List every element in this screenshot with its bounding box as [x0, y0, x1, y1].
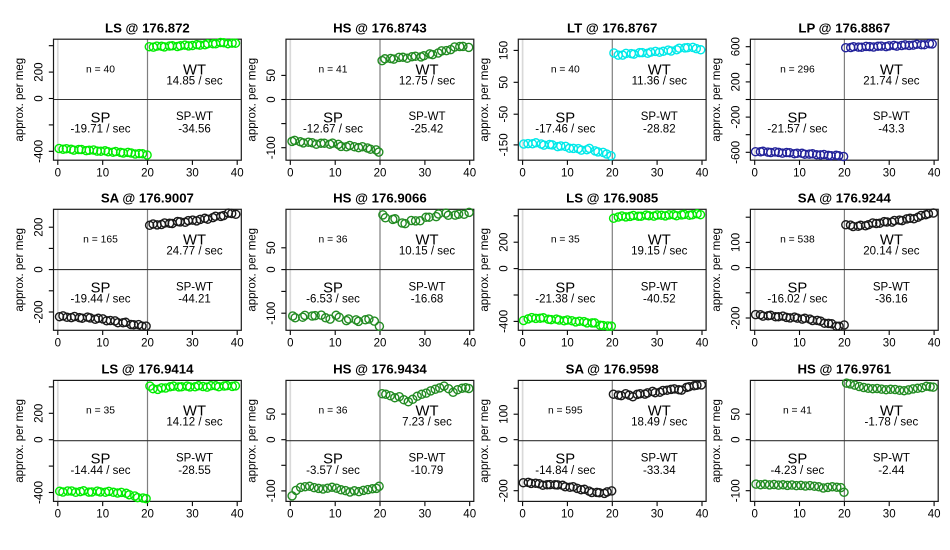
svg-text:40: 40 — [928, 338, 941, 350]
svg-text:n = 595: n = 595 — [548, 406, 583, 417]
svg-text:50: 50 — [266, 241, 278, 254]
svg-text:HS @ 176.9761: HS @ 176.9761 — [798, 362, 892, 377]
svg-text:-19.44 / sec: -19.44 / sec — [70, 294, 130, 306]
svg-text:150: 150 — [498, 41, 510, 60]
svg-text:24.77 / sec: 24.77 / sec — [166, 246, 223, 258]
svg-text:11.36 / sec: 11.36 / sec — [632, 75, 688, 87]
svg-text:0: 0 — [519, 509, 525, 521]
svg-text:0: 0 — [55, 509, 61, 521]
svg-text:10: 10 — [561, 509, 574, 521]
svg-text:-600: -600 — [730, 141, 742, 164]
svg-text:-200: -200 — [498, 479, 510, 502]
svg-text:SP-WT: SP-WT — [873, 281, 910, 293]
svg-text:40: 40 — [928, 509, 941, 521]
svg-text:-16.68: -16.68 — [411, 294, 444, 306]
svg-text:-2.44: -2.44 — [878, 465, 905, 477]
svg-text:SP-WT: SP-WT — [873, 452, 910, 464]
svg-text:40: 40 — [231, 338, 244, 350]
svg-text:approx. per meg: approx. per meg — [247, 58, 259, 142]
svg-text:10: 10 — [793, 167, 806, 179]
svg-text:14.12 / sec: 14.12 / sec — [166, 417, 223, 429]
svg-text:0: 0 — [498, 265, 510, 271]
svg-text:-16.02 / sec: -16.02 / sec — [767, 294, 827, 306]
svg-text:-14.44 / sec: -14.44 / sec — [70, 465, 130, 477]
svg-text:0: 0 — [751, 509, 757, 521]
svg-text:20: 20 — [838, 338, 851, 350]
svg-text:0: 0 — [519, 167, 525, 179]
svg-text:50: 50 — [498, 76, 510, 89]
svg-text:10: 10 — [793, 509, 806, 521]
svg-text:30: 30 — [186, 167, 199, 179]
svg-text:10.15 / sec: 10.15 / sec — [399, 246, 456, 258]
svg-text:30: 30 — [419, 509, 432, 521]
svg-text:-12.67 / sec: -12.67 / sec — [303, 124, 363, 136]
svg-text:20: 20 — [838, 167, 851, 179]
svg-text:-6.53 / sec: -6.53 / sec — [306, 294, 360, 306]
svg-text:18.49 / sec: 18.49 / sec — [631, 417, 688, 429]
svg-text:0: 0 — [266, 96, 278, 102]
svg-text:0: 0 — [751, 167, 757, 179]
svg-text:20.14 / sec: 20.14 / sec — [863, 246, 920, 258]
svg-text:LS @ 176.872: LS @ 176.872 — [105, 21, 190, 36]
svg-text:-150: -150 — [498, 133, 510, 156]
svg-text:approx. per meg: approx. per meg — [247, 399, 259, 483]
svg-text:10: 10 — [329, 338, 342, 350]
svg-text:40: 40 — [231, 167, 244, 179]
svg-text:-36.16: -36.16 — [875, 294, 908, 306]
svg-text:approx. per meg: approx. per meg — [479, 399, 491, 483]
svg-text:30: 30 — [883, 509, 896, 521]
svg-text:20: 20 — [374, 338, 387, 350]
svg-text:-10.79: -10.79 — [411, 465, 444, 477]
svg-text:LT @ 176.8767: LT @ 176.8767 — [567, 21, 657, 36]
svg-text:10: 10 — [96, 338, 109, 350]
svg-text:-40.52: -40.52 — [643, 294, 676, 306]
svg-text:-200: -200 — [730, 106, 742, 129]
svg-text:-400: -400 — [498, 310, 510, 333]
svg-text:-100: -100 — [266, 479, 278, 502]
svg-text:30: 30 — [883, 167, 896, 179]
svg-text:40: 40 — [463, 509, 476, 521]
svg-text:-28.55: -28.55 — [178, 465, 211, 477]
svg-text:SA @ 176.9244: SA @ 176.9244 — [798, 191, 892, 206]
svg-text:20: 20 — [141, 338, 154, 350]
svg-text:-100: -100 — [266, 136, 278, 159]
svg-text:200: 200 — [730, 72, 742, 91]
svg-text:30: 30 — [883, 338, 896, 350]
svg-text:100: 100 — [498, 405, 510, 424]
svg-text:40: 40 — [463, 167, 476, 179]
svg-text:7.23 / sec: 7.23 / sec — [402, 417, 452, 429]
svg-text:40: 40 — [696, 338, 709, 350]
svg-text:200: 200 — [498, 233, 510, 252]
svg-text:20: 20 — [606, 509, 619, 521]
svg-text:approx. per meg: approx. per meg — [14, 228, 26, 312]
svg-text:HS @ 176.9066: HS @ 176.9066 — [333, 191, 427, 206]
svg-text:-14.84 / sec: -14.84 / sec — [535, 465, 595, 477]
svg-text:30: 30 — [651, 338, 664, 350]
svg-text:approx. per meg: approx. per meg — [711, 58, 723, 142]
svg-text:-34.56: -34.56 — [178, 124, 211, 136]
svg-text:-43.3: -43.3 — [878, 124, 904, 136]
svg-text:20: 20 — [141, 167, 154, 179]
svg-text:50: 50 — [730, 408, 742, 421]
svg-text:approx. per meg: approx. per meg — [479, 58, 491, 142]
svg-text:30: 30 — [186, 509, 199, 521]
svg-text:n = 41: n = 41 — [783, 406, 812, 417]
svg-text:21.74 / sec: 21.74 / sec — [863, 75, 920, 87]
svg-text:SP-WT: SP-WT — [873, 111, 910, 123]
svg-text:10: 10 — [96, 167, 109, 179]
svg-text:-1.78 / sec: -1.78 / sec — [865, 417, 919, 429]
svg-text:SP-WT: SP-WT — [176, 111, 213, 123]
svg-text:-50: -50 — [498, 106, 510, 123]
svg-text:n = 538: n = 538 — [780, 234, 815, 245]
svg-text:0: 0 — [266, 436, 278, 442]
svg-text:50: 50 — [266, 408, 278, 421]
svg-text:0: 0 — [34, 436, 46, 442]
svg-text:0: 0 — [34, 95, 46, 101]
svg-text:200: 200 — [34, 63, 46, 82]
svg-text:10: 10 — [329, 167, 342, 179]
svg-text:-19.71 / sec: -19.71 / sec — [70, 124, 130, 136]
svg-text:0: 0 — [730, 436, 742, 442]
svg-text:20: 20 — [374, 509, 387, 521]
svg-text:20: 20 — [141, 509, 154, 521]
svg-text:20: 20 — [374, 167, 387, 179]
svg-text:20: 20 — [606, 338, 619, 350]
svg-text:-200: -200 — [730, 306, 742, 329]
svg-text:0: 0 — [498, 436, 510, 442]
svg-text:approx. per meg: approx. per meg — [14, 58, 26, 142]
svg-text:SP-WT: SP-WT — [641, 281, 678, 293]
svg-text:30: 30 — [186, 338, 199, 350]
svg-text:0: 0 — [55, 167, 61, 179]
svg-text:20: 20 — [606, 167, 619, 179]
svg-text:n = 36: n = 36 — [319, 234, 348, 245]
svg-text:n = 35: n = 35 — [551, 234, 580, 245]
svg-text:-4.23 / sec: -4.23 / sec — [771, 465, 825, 477]
svg-text:SP-WT: SP-WT — [408, 111, 445, 123]
svg-text:LS @ 176.9414: LS @ 176.9414 — [101, 362, 194, 377]
svg-text:SP-WT: SP-WT — [408, 281, 445, 293]
svg-text:14.85 / sec: 14.85 / sec — [166, 75, 223, 87]
svg-text:-100: -100 — [730, 479, 742, 502]
svg-text:n = 35: n = 35 — [86, 406, 115, 417]
svg-text:10: 10 — [561, 338, 574, 350]
svg-text:approx. per meg: approx. per meg — [479, 228, 491, 312]
svg-text:HS @ 176.8743: HS @ 176.8743 — [333, 21, 427, 36]
svg-text:50: 50 — [266, 69, 278, 82]
svg-text:-33.34: -33.34 — [643, 465, 676, 477]
svg-text:40: 40 — [696, 167, 709, 179]
svg-text:20: 20 — [838, 509, 851, 521]
svg-text:LS @ 176.9085: LS @ 176.9085 — [566, 191, 658, 206]
svg-text:12.75 / sec: 12.75 / sec — [399, 75, 456, 87]
svg-text:200: 200 — [34, 404, 46, 423]
svg-text:0: 0 — [266, 266, 278, 272]
svg-text:-100: -100 — [266, 302, 278, 325]
svg-text:200: 200 — [34, 218, 46, 237]
svg-text:10: 10 — [96, 509, 109, 521]
svg-text:n = 296: n = 296 — [780, 64, 815, 75]
svg-text:30: 30 — [419, 338, 432, 350]
svg-text:-400: -400 — [34, 140, 46, 163]
svg-text:40: 40 — [928, 167, 941, 179]
svg-text:100: 100 — [730, 233, 742, 252]
svg-text:0: 0 — [519, 338, 525, 350]
svg-text:n = 41: n = 41 — [319, 64, 348, 75]
svg-text:0: 0 — [287, 167, 293, 179]
svg-text:-21.57 / sec: -21.57 / sec — [767, 124, 827, 136]
svg-text:SP-WT: SP-WT — [641, 452, 678, 464]
svg-text:30: 30 — [651, 509, 664, 521]
svg-text:-400: -400 — [34, 481, 46, 504]
svg-text:0: 0 — [55, 338, 61, 350]
svg-text:10: 10 — [793, 338, 806, 350]
svg-text:19.15 / sec: 19.15 / sec — [631, 246, 688, 258]
svg-text:-44.21: -44.21 — [178, 294, 211, 306]
svg-text:n = 40: n = 40 — [551, 64, 580, 75]
svg-text:approx. per meg: approx. per meg — [14, 399, 26, 483]
svg-text:40: 40 — [696, 509, 709, 521]
svg-text:0: 0 — [730, 264, 742, 270]
svg-text:SA @ 176.9007: SA @ 176.9007 — [101, 191, 194, 206]
svg-text:-25.42: -25.42 — [411, 124, 444, 136]
svg-text:n = 40: n = 40 — [86, 64, 115, 75]
svg-text:40: 40 — [231, 509, 244, 521]
svg-text:-200: -200 — [34, 300, 46, 323]
svg-text:40: 40 — [463, 338, 476, 350]
svg-text:approx. per meg: approx. per meg — [711, 228, 723, 312]
svg-text:-28.82: -28.82 — [643, 124, 676, 136]
svg-text:-3.57 / sec: -3.57 / sec — [306, 465, 360, 477]
svg-text:10: 10 — [561, 167, 574, 179]
svg-text:n = 165: n = 165 — [83, 234, 118, 245]
svg-text:SA @ 176.9598: SA @ 176.9598 — [566, 362, 659, 377]
svg-text:approx. per meg: approx. per meg — [711, 399, 723, 483]
svg-text:SP-WT: SP-WT — [408, 452, 445, 464]
svg-text:30: 30 — [419, 167, 432, 179]
svg-text:SP-WT: SP-WT — [641, 111, 678, 123]
svg-text:0: 0 — [287, 338, 293, 350]
svg-text:SP-WT: SP-WT — [176, 281, 213, 293]
svg-text:HS @ 176.9434: HS @ 176.9434 — [333, 362, 427, 377]
svg-text:-21.38 / sec: -21.38 / sec — [535, 294, 595, 306]
svg-text:30: 30 — [651, 167, 664, 179]
svg-text:600: 600 — [730, 37, 742, 56]
svg-text:SP-WT: SP-WT — [176, 452, 213, 464]
svg-text:approx. per meg: approx. per meg — [247, 228, 259, 312]
svg-text:0: 0 — [751, 338, 757, 350]
svg-text:10: 10 — [329, 509, 342, 521]
svg-text:LP @ 176.8867: LP @ 176.8867 — [798, 21, 890, 36]
svg-text:0: 0 — [34, 266, 46, 272]
svg-text:-17.46 / sec: -17.46 / sec — [535, 124, 595, 136]
svg-text:0: 0 — [287, 509, 293, 521]
svg-text:n = 36: n = 36 — [319, 406, 348, 417]
